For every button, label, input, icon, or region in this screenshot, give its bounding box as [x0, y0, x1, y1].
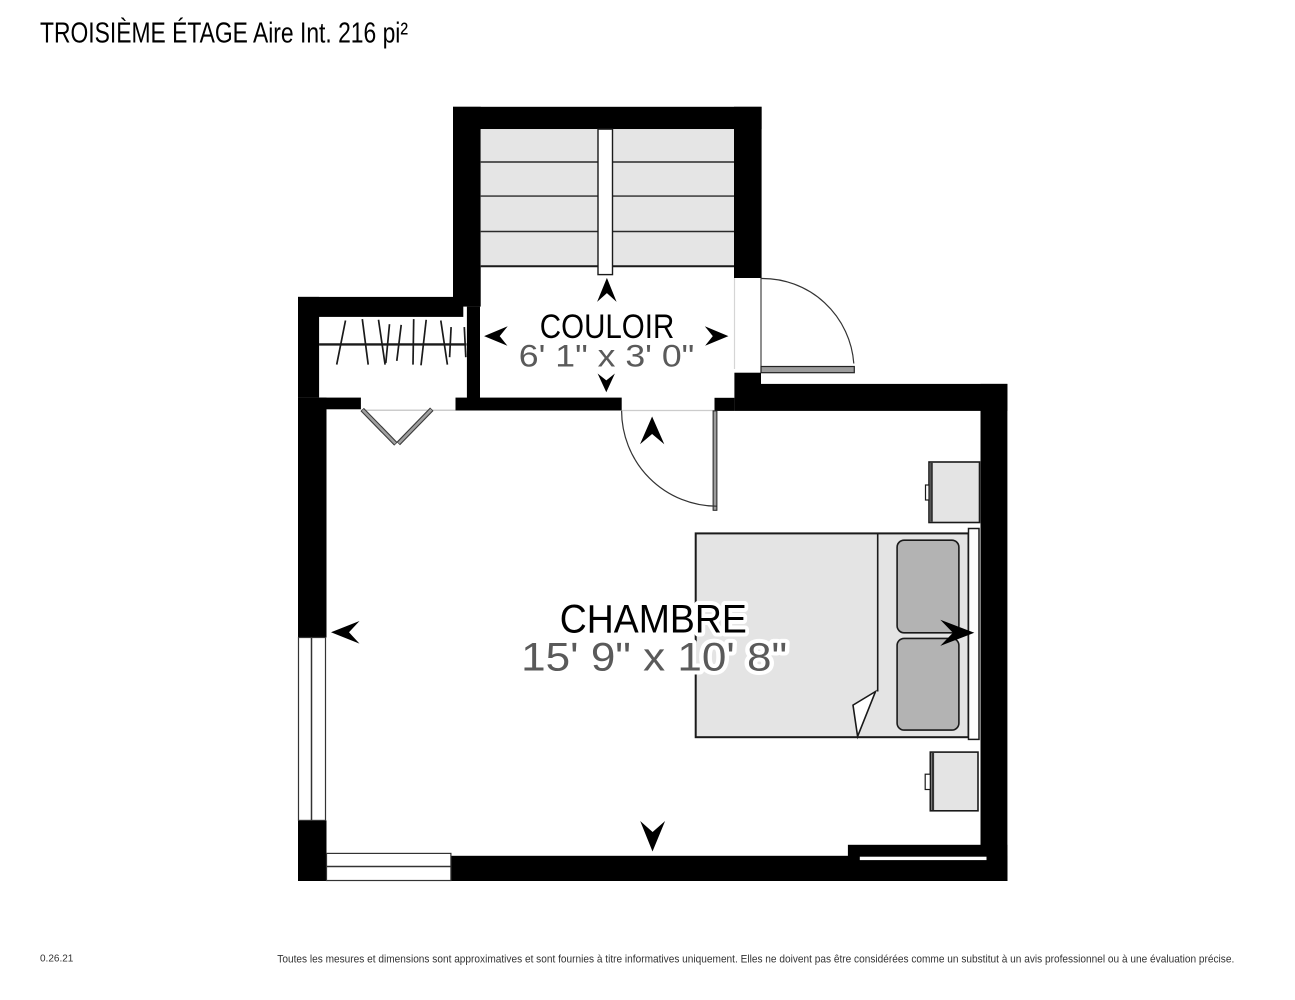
svg-text:6' 1" x 3' 0": 6' 1" x 3' 0" [519, 338, 695, 373]
svg-text:TROISIÈME ÉTAGE Aire Int. 216: TROISIÈME ÉTAGE Aire Int. 216 pi² [40, 18, 408, 50]
svg-text:15' 9" x 10' 8": 15' 9" x 10' 8" [521, 636, 787, 680]
svg-text:0.26.21: 0.26.21 [40, 953, 74, 964]
svg-text:Toutes les mesures et dimensio: Toutes les mesures et dimensions sont ap… [277, 953, 1234, 965]
